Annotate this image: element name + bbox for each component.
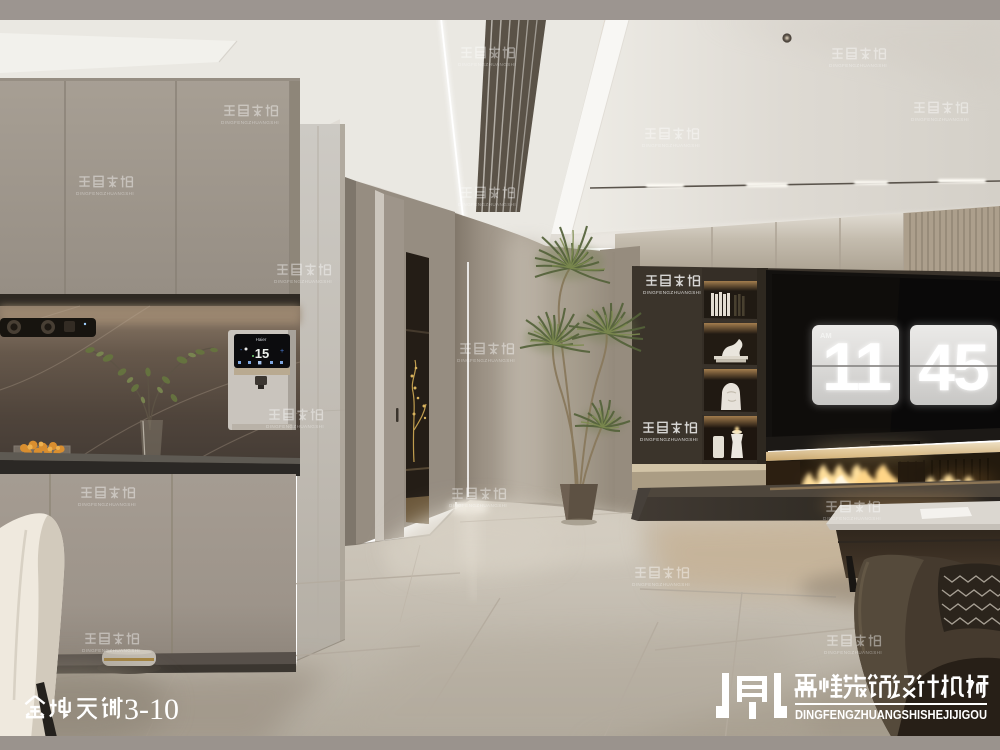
- svg-text:DINGFENGZHUANGSHISHEJIJIGOU: DINGFENGZHUANGSHISHEJIJIGOU: [795, 708, 987, 722]
- svg-text:3-10: 3-10: [124, 693, 179, 726]
- svg-text:15: 15: [255, 346, 269, 361]
- svg-text:+: +: [280, 348, 284, 355]
- svg-text:Haier: Haier: [256, 337, 267, 342]
